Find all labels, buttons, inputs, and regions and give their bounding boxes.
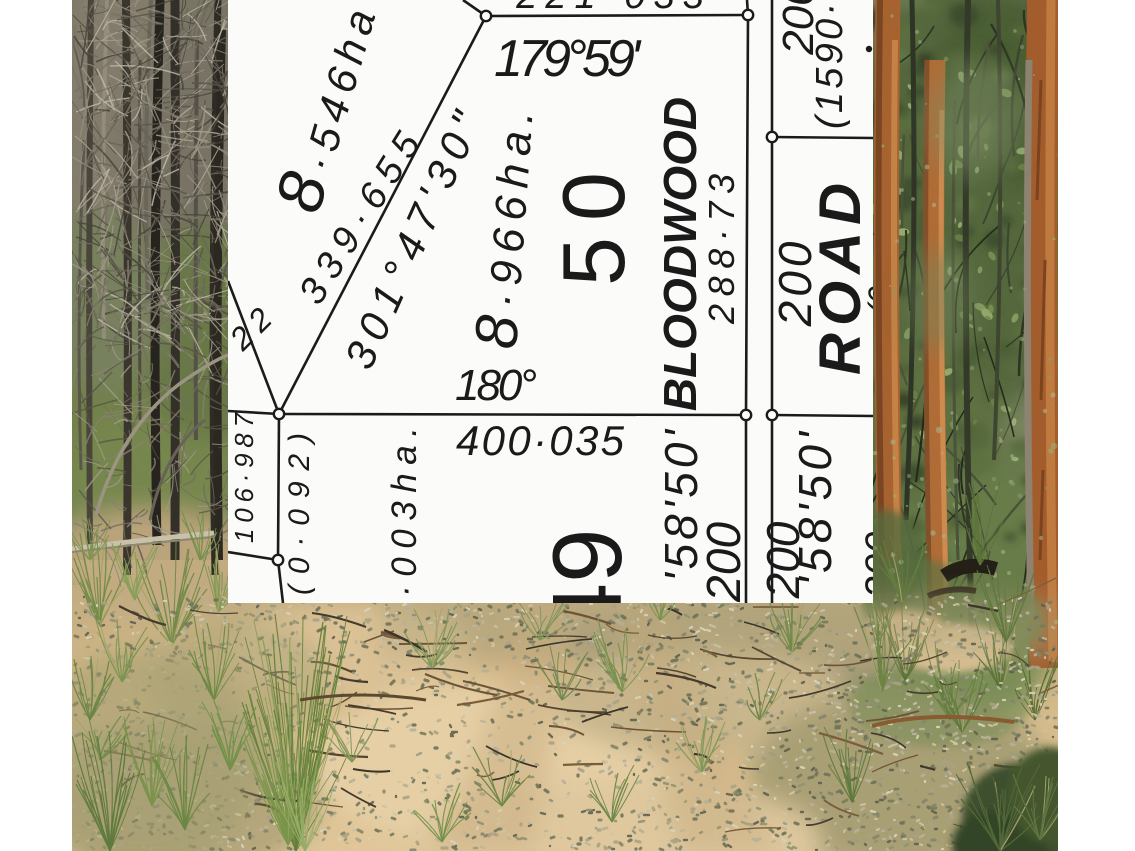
svg-text:BLOODWOOD: BLOODWOOD [654,97,706,411]
svg-text:221·033: 221·033 [515,0,711,17]
svg-text:200: 200 [698,522,751,603]
svg-text:(0·092): (0·092) [283,433,316,595]
svg-text:179°59': 179°59' [494,30,642,88]
svg-text:180°: 180° [455,361,537,410]
svg-text:200: 200 [769,238,821,328]
svg-text:200: 200 [757,521,809,599]
svg-text:50: 50 [544,156,643,286]
svg-text:·003ha.: ·003ha. [385,427,424,597]
